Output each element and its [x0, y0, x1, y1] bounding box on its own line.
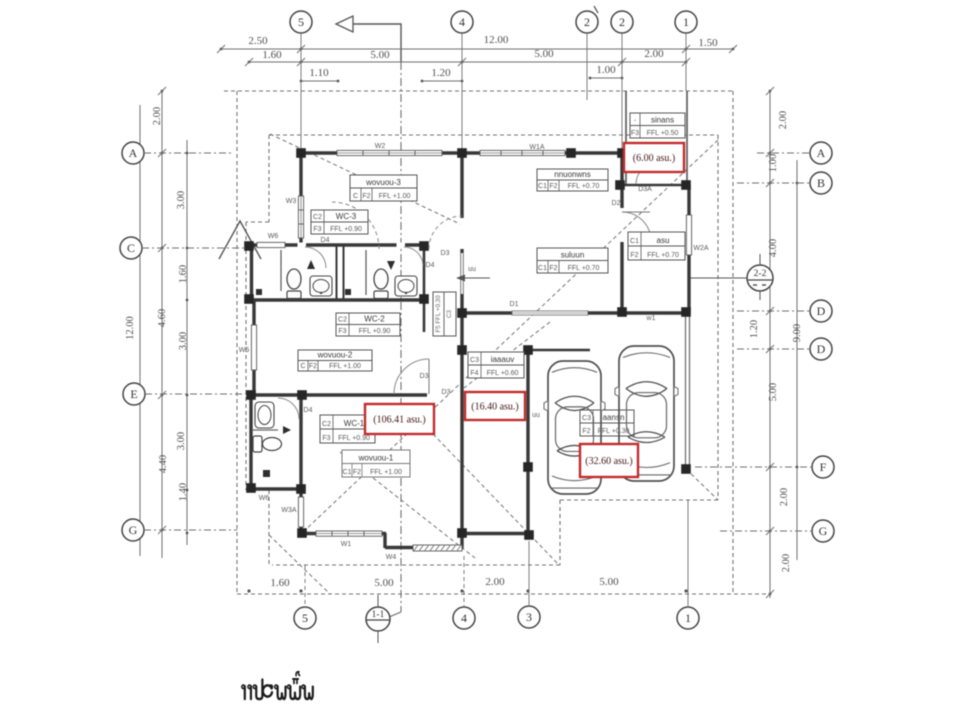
- svg-text:2: 2: [619, 15, 625, 29]
- svg-text:D2: D2: [612, 200, 621, 207]
- svg-text:D: D: [817, 304, 826, 318]
- svg-text:wovuou-3: wovuou-3: [365, 178, 401, 187]
- svg-text:F3: F3: [631, 130, 639, 137]
- svg-text:G: G: [819, 524, 828, 538]
- svg-text:5: 5: [302, 611, 308, 625]
- svg-text:aansn: aansn: [603, 413, 625, 422]
- svg-text:FFL +0.90: FFL +0.90: [359, 328, 391, 335]
- svg-text:iaaauv: iaaauv: [491, 355, 515, 364]
- svg-text:3.00: 3.00: [176, 191, 187, 209]
- svg-text:uu: uu: [468, 266, 476, 273]
- svg-text:C3: C3: [470, 357, 479, 364]
- svg-text:1.50: 1.50: [698, 37, 718, 49]
- svg-text:5.00: 5.00: [599, 576, 619, 588]
- svg-text:FFL +0.70: FFL +0.70: [647, 252, 679, 259]
- svg-text:3.00: 3.00: [178, 332, 189, 350]
- svg-text:2-2: 2-2: [754, 269, 767, 279]
- svg-text:F2: F2: [309, 363, 317, 370]
- svg-text:FFL +0.60: FFL +0.60: [487, 370, 519, 377]
- svg-text:C2: C2: [338, 316, 347, 323]
- svg-text:12.00: 12.00: [484, 34, 509, 46]
- svg-text:A: A: [817, 146, 826, 160]
- svg-text:W1A: W1A: [529, 144, 545, 151]
- svg-text:F2: F2: [630, 252, 638, 259]
- svg-text:2.50: 2.50: [248, 35, 268, 47]
- svg-text:W2: W2: [375, 143, 386, 150]
- svg-text:C3: C3: [446, 309, 453, 317]
- svg-text:suluun: suluun: [561, 250, 585, 259]
- svg-text:(106.41 asu.): (106.41 asu.): [373, 415, 426, 426]
- svg-text:4: 4: [461, 611, 467, 625]
- svg-text:2.00: 2.00: [152, 107, 163, 125]
- svg-text:4: 4: [459, 15, 465, 29]
- svg-text:1.00: 1.00: [596, 64, 616, 76]
- svg-text:1.60: 1.60: [262, 49, 282, 61]
- svg-text:5.00: 5.00: [534, 48, 554, 60]
- svg-text:WC-2: WC-2: [364, 314, 385, 323]
- svg-text:2.00: 2.00: [644, 48, 664, 60]
- svg-text:C: C: [300, 363, 305, 370]
- svg-text:W6: W6: [268, 233, 279, 240]
- svg-text:FFL +0.90: FFL +0.90: [338, 435, 370, 442]
- svg-text:W5: W5: [239, 347, 250, 354]
- svg-text:C1: C1: [343, 469, 352, 476]
- svg-text:5: 5: [298, 15, 304, 29]
- svg-text:D3: D3: [441, 250, 450, 257]
- svg-text:2.00: 2.00: [779, 488, 790, 506]
- svg-text:3: 3: [526, 610, 532, 624]
- svg-text:1.10: 1.10: [309, 67, 329, 79]
- svg-text:1: 1: [685, 611, 691, 625]
- svg-text:F3: F3: [313, 226, 321, 233]
- svg-text:(6.00 asu.): (6.00 asu.): [633, 153, 676, 164]
- svg-text:F5 FFL +0.30: F5 FFL +0.30: [435, 295, 442, 333]
- svg-text:(16.40 asu.): (16.40 asu.): [471, 402, 519, 413]
- svg-text:C1: C1: [538, 183, 547, 190]
- svg-text:C1: C1: [538, 265, 547, 272]
- svg-text:FFL +0.90: FFL +0.90: [330, 226, 362, 233]
- svg-text:F3: F3: [338, 328, 346, 335]
- svg-text:2.00: 2.00: [781, 554, 792, 572]
- svg-text:12.00: 12.00: [125, 316, 136, 340]
- svg-text:2: 2: [584, 15, 590, 29]
- svg-text:FFL +1.00: FFL +1.00: [329, 363, 361, 370]
- svg-text:4.40: 4.40: [158, 455, 169, 473]
- svg-text:B: B: [817, 176, 825, 190]
- svg-text:F3: F3: [322, 435, 330, 442]
- svg-text:F2: F2: [549, 183, 557, 190]
- svg-text:F2: F2: [582, 428, 590, 435]
- svg-text:1.20: 1.20: [431, 67, 451, 79]
- svg-text:D: D: [817, 342, 826, 356]
- svg-text:nnuonwns: nnuonwns: [554, 170, 590, 179]
- svg-text:9.00: 9.00: [792, 324, 803, 342]
- svg-text:F2: F2: [362, 193, 370, 200]
- svg-text:W4: W4: [386, 554, 397, 561]
- svg-text:1.60: 1.60: [178, 265, 189, 283]
- svg-text:D3: D3: [420, 373, 429, 380]
- svg-text:4.00: 4.00: [768, 239, 779, 257]
- svg-text:D3A: D3A: [638, 186, 652, 193]
- svg-text:wovuou-1: wovuou-1: [358, 453, 394, 462]
- svg-text:E: E: [130, 387, 137, 401]
- svg-text:WC-3: WC-3: [336, 212, 357, 221]
- svg-text:D4: D4: [304, 407, 313, 414]
- svg-text:1.60: 1.60: [270, 577, 290, 589]
- svg-text:W3: W3: [286, 198, 297, 205]
- svg-text:F: F: [820, 460, 827, 474]
- svg-text:D1: D1: [510, 301, 519, 308]
- svg-text:C: C: [353, 193, 358, 200]
- svg-text:5.00: 5.00: [370, 49, 390, 61]
- svg-text:wovuou-2: wovuou-2: [317, 350, 353, 359]
- svg-text:FFL +0.50: FFL +0.50: [647, 130, 679, 137]
- svg-text:F4: F4: [470, 370, 478, 377]
- svg-text:2.00: 2.00: [485, 576, 505, 588]
- svg-text:C1: C1: [630, 238, 639, 245]
- svg-text:1.40: 1.40: [178, 483, 189, 501]
- svg-text:1.00: 1.00: [768, 154, 779, 172]
- svg-text:sinans: sinans: [651, 115, 674, 124]
- svg-text:asu: asu: [657, 236, 670, 245]
- svg-text:1-1: 1-1: [372, 610, 385, 620]
- svg-text:w1: w1: [646, 315, 656, 322]
- svg-text:G: G: [129, 523, 138, 537]
- svg-text:FFL +1.00: FFL +1.00: [379, 193, 411, 200]
- svg-text:F2: F2: [353, 469, 361, 476]
- svg-text:1.20: 1.20: [749, 320, 760, 338]
- svg-text:D4: D4: [426, 262, 435, 269]
- svg-text:W2A: W2A: [693, 245, 709, 252]
- svg-text:FFL +0.70: FFL +0.70: [568, 265, 600, 272]
- svg-text:F2: F2: [549, 265, 557, 272]
- svg-text:D3: D3: [442, 389, 451, 396]
- svg-text:5.00: 5.00: [374, 577, 394, 589]
- svg-text:C2: C2: [322, 421, 331, 428]
- svg-text:C2: C2: [313, 214, 322, 221]
- svg-text:A: A: [129, 146, 138, 160]
- svg-text:1: 1: [683, 15, 689, 29]
- svg-text:W1: W1: [341, 541, 352, 548]
- svg-text:WC-1: WC-1: [344, 419, 365, 428]
- svg-text:3.00: 3.00: [176, 432, 187, 450]
- svg-text:C: C: [127, 241, 135, 255]
- svg-text:4.60: 4.60: [157, 309, 168, 327]
- svg-text:uu: uu: [532, 412, 540, 419]
- svg-text:C3: C3: [582, 415, 591, 422]
- svg-text:5.00: 5.00: [768, 383, 779, 401]
- svg-text:W6: W6: [259, 495, 270, 502]
- svg-text:(32.60 asu.): (32.60 asu.): [585, 456, 633, 467]
- svg-text:2.00: 2.00: [778, 111, 789, 129]
- svg-text:FFL +0.30: FFL +0.30: [598, 428, 630, 435]
- svg-text:FFL +0.70: FFL +0.70: [568, 183, 600, 190]
- svg-text:FFL +1.00: FFL +1.00: [370, 469, 402, 476]
- svg-text:W3A: W3A: [281, 507, 297, 514]
- svg-text:D4: D4: [321, 237, 330, 244]
